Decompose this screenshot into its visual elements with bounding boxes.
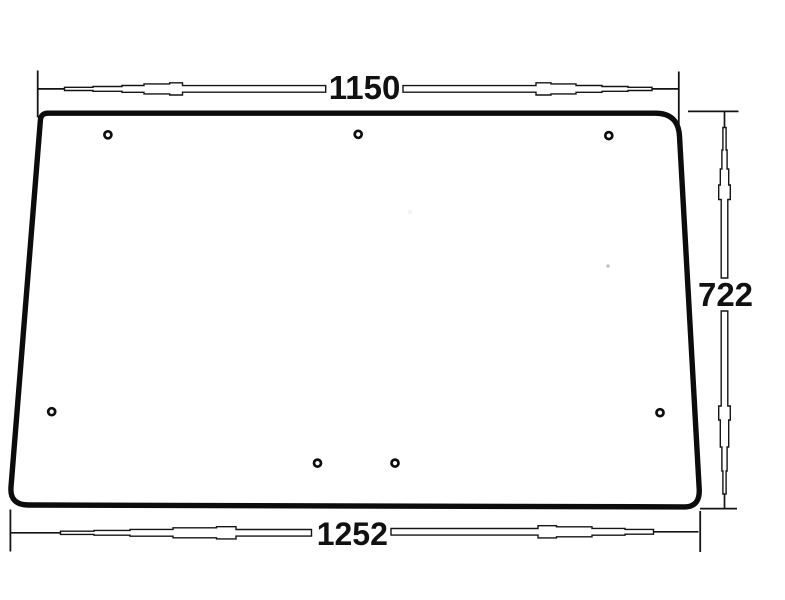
svg-text:722: 722: [698, 276, 753, 313]
svg-text:1252: 1252: [317, 516, 388, 552]
svg-text:1150: 1150: [329, 69, 401, 106]
